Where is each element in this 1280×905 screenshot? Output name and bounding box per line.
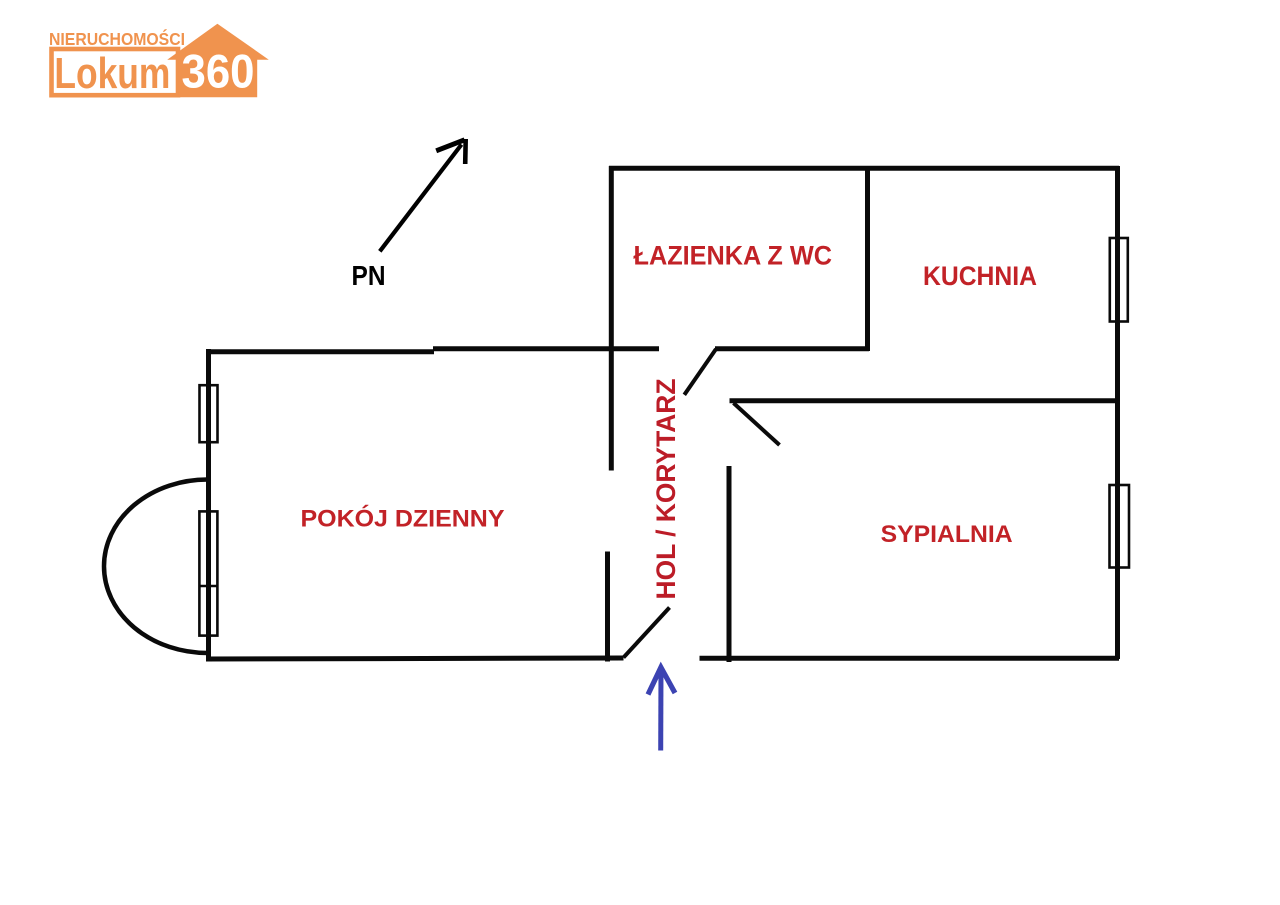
svg-text:ŁAZIENKA Z WC: ŁAZIENKA Z WC	[634, 240, 833, 270]
svg-text:KUCHNIA: KUCHNIA	[923, 261, 1037, 291]
svg-text:PN: PN	[352, 260, 386, 291]
svg-text:NIERUCHOMOŚCI: NIERUCHOMOŚCI	[49, 28, 185, 49]
svg-text:SYPIALNIA: SYPIALNIA	[881, 521, 1013, 548]
svg-text:HOL / KORYTARZ: HOL / KORYTARZ	[651, 379, 681, 600]
svg-text:POKÓJ DZIENNY: POKÓJ DZIENNY	[301, 504, 505, 532]
svg-text:360: 360	[182, 45, 255, 98]
svg-text:Lokum: Lokum	[54, 49, 170, 98]
